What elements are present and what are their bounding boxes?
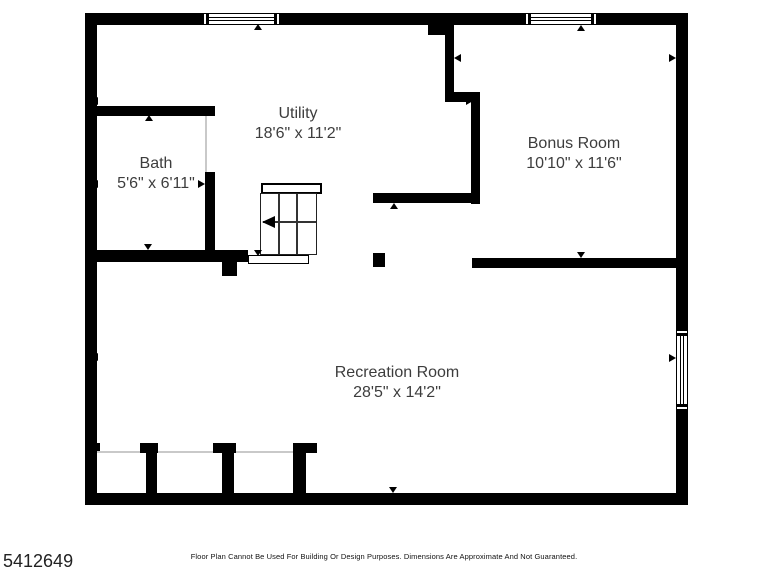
stair-tread-line xyxy=(296,194,298,254)
closet-cap-a xyxy=(140,443,158,453)
floor-plan: Utility 18'6" x 11'2" Bath 5'6" x 6'11" … xyxy=(0,0,768,576)
window-pane-line xyxy=(209,20,274,21)
window-mullion-icon xyxy=(591,14,594,24)
room-dimensions: 5'6" x 6'11" xyxy=(117,174,195,194)
wall-bath-bottom xyxy=(85,250,248,262)
window-pane-line xyxy=(683,336,684,404)
window-pane-line xyxy=(531,20,591,21)
room-name: Utility xyxy=(255,104,342,124)
closet-wall-b xyxy=(222,453,234,494)
window-mullion-icon xyxy=(274,14,277,24)
room-label-recreation: Recreation Room 28'5" x 14'2" xyxy=(335,363,460,403)
stair-tread-line xyxy=(278,194,280,254)
window-utility-icon xyxy=(203,13,280,25)
window-bonus-icon xyxy=(525,13,597,25)
support-post xyxy=(373,253,385,267)
wall-bath-right xyxy=(205,172,215,262)
dim-arrow-recreation-down xyxy=(389,487,397,493)
dim-arrow-bath-left xyxy=(91,180,98,188)
window-pane-line xyxy=(531,17,591,18)
stair-direction-arrow-icon xyxy=(262,216,275,228)
window-pane-line xyxy=(209,17,274,18)
dim-arrow-bath-up xyxy=(145,115,153,121)
dim-arrow-utility-left xyxy=(91,97,98,105)
closet-opening-line xyxy=(97,451,140,453)
wall-outer-bottom xyxy=(85,493,688,505)
room-label-bath: Bath 5'6" x 6'11" xyxy=(117,154,195,194)
dim-arrow-bath-right xyxy=(198,180,205,188)
bath-door-opening-line xyxy=(205,116,207,172)
wall-divider-lower xyxy=(471,101,480,204)
room-label-bonus: Bonus Room 10'10" x 11'6" xyxy=(526,134,621,174)
window-pane-line xyxy=(680,336,681,404)
window-recreation-icon xyxy=(676,330,688,410)
closet-cap-c xyxy=(293,443,317,453)
closet-opening-line xyxy=(158,451,213,453)
dim-arrow-utility-up xyxy=(254,24,262,30)
dim-arrow-bonus-down xyxy=(577,252,585,258)
dim-arrow-bonus-up xyxy=(577,25,585,31)
dim-arrow-bath-down xyxy=(144,244,152,250)
wall-bonus-bottom xyxy=(472,258,680,268)
stairs-body xyxy=(260,193,317,255)
dim-arrow-bonus-left xyxy=(454,54,461,62)
wall-stub-below-bath xyxy=(222,262,237,276)
room-name: Bonus Room xyxy=(526,134,621,154)
closet-cap-b xyxy=(213,443,236,453)
room-label-utility: Utility 18'6" x 11'2" xyxy=(255,104,342,144)
dim-arrow-bonus-right xyxy=(669,54,676,62)
closet-wall-a xyxy=(146,453,157,494)
wall-divider-upper xyxy=(445,25,454,93)
room-dimensions: 28'5" x 14'2" xyxy=(335,383,460,403)
dim-arrow-utility-right xyxy=(466,97,473,105)
room-name: Bath xyxy=(117,154,195,174)
wall-outer-top xyxy=(85,13,688,25)
dim-arrow-utility-down xyxy=(254,250,262,256)
dim-arrow-recreation-left xyxy=(91,353,98,361)
room-dimensions: 10'10" x 11'6" xyxy=(526,154,621,174)
dim-arrow-recreation-right xyxy=(669,354,676,362)
stairs-bottom-landing xyxy=(248,255,309,264)
closet-opening-line xyxy=(236,451,293,453)
room-dimensions: 18'6" x 11'2" xyxy=(255,124,342,144)
closet-wall-c xyxy=(293,453,306,494)
disclaimer-text: Floor Plan Cannot Be Used For Building O… xyxy=(0,552,768,561)
room-name: Recreation Room xyxy=(335,363,460,383)
dim-arrow-recreation-up xyxy=(390,203,398,209)
wall-utility-south xyxy=(373,193,480,203)
window-mullion-icon xyxy=(677,404,687,407)
